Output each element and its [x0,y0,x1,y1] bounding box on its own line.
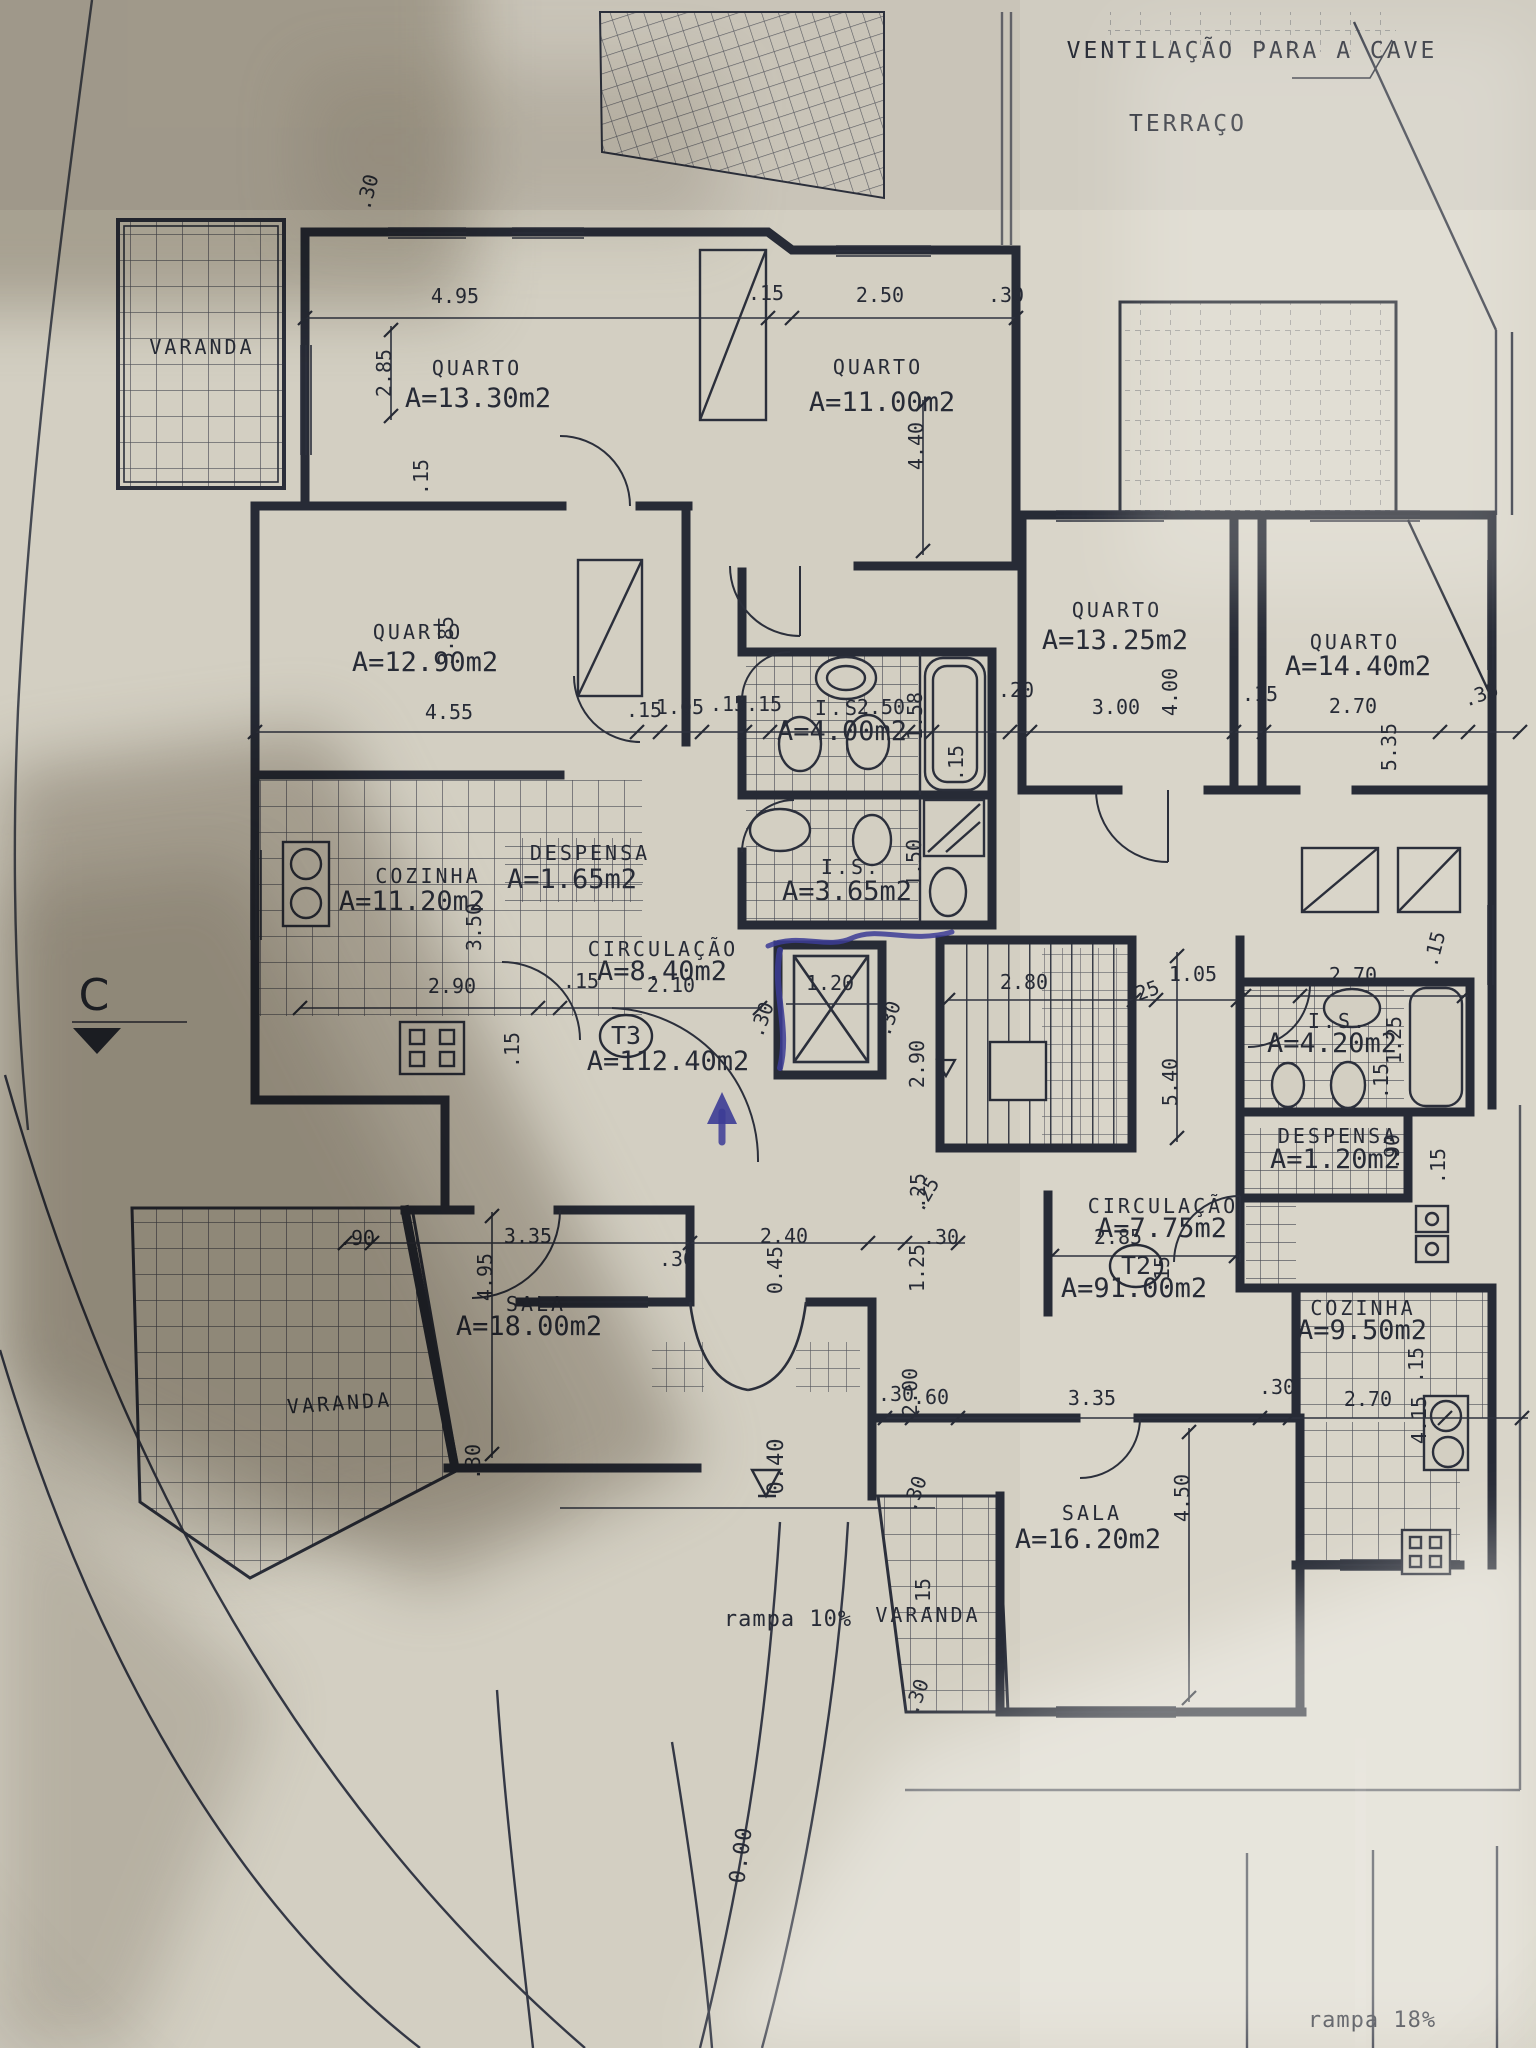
unit-area: A=112.40m2 [587,1046,750,1077]
dimension: 4.15 [1407,1396,1431,1444]
level-0-40: 0.40 [764,1438,789,1495]
floorplan-svg: VARANDAQUARTOA=13.30m2QUARTOA=11.00m2QUA… [0,0,1536,2048]
unit-area: A=91.00m2 [1061,1273,1207,1304]
dimension: .15 [944,745,968,781]
dimension: .15 [1369,1063,1393,1099]
dimension: 2.70 [1329,963,1377,987]
dimension: 2.80 [1000,970,1048,994]
room-area: A=4.20m2 [1267,1028,1397,1059]
dimension: 1.25 [905,1244,929,1292]
dimension: 4.00 [1158,668,1182,716]
bathtub-icon [1410,988,1462,1106]
dimension: 1.50 [902,839,926,887]
dimension: .90 [1380,1134,1404,1170]
room-label: QUARTO [432,356,522,380]
room-area: A=13.30m2 [405,383,551,414]
dimension: 2.10 [647,973,695,997]
room-area: A=11.00m2 [809,387,955,418]
room-area: A=1.65m2 [507,864,637,895]
dimension: .15 [1404,1347,1428,1383]
toilet-icon [1331,1062,1365,1108]
room-area: A=12.90m2 [352,647,498,678]
dimension: .15 [746,692,782,716]
dimension: 3.50 [462,903,486,951]
dimension: .30 [659,1247,695,1271]
dimension: .20 [998,678,1034,702]
room-area: A=4.00m2 [777,716,907,747]
dimension: 4.50 [1170,1474,1194,1522]
dimension: 2.50 [857,695,905,719]
room-label: SALA [1062,1501,1122,1525]
room-area: A=9.50m2 [1297,1315,1427,1346]
dimension: 2.50 [856,283,904,307]
dimension: .15 [563,969,599,993]
dimension: 3.00 [1092,695,1140,719]
floorplan-photo: VARANDAQUARTOA=13.30m2QUARTOA=11.00m2QUA… [0,0,1536,2048]
dimension: .30 [988,283,1024,307]
dimension: 2.85 [372,349,396,397]
dimension: .15 [409,459,433,495]
dimension: 1.58 [903,692,927,740]
dimension: 2.40 [760,1224,808,1248]
dimension: 2.00 [898,1368,922,1416]
dimension: .15 [710,692,746,716]
dimension: 3.85 [434,616,458,664]
room-area: A=13.25m2 [1042,625,1188,656]
room-area: A=14.40m2 [1285,651,1431,682]
room-area: A=16.20m2 [1015,1524,1161,1555]
dimension: 1.05 [656,695,704,719]
dimension: 1.05 [1169,962,1217,986]
washbasin-icon [816,657,876,699]
dimension: .15 [1242,682,1278,706]
dimension: 2.70 [1344,1387,1392,1411]
appliance-icon [1416,1236,1448,1262]
dimension: 0.45 [763,1246,787,1294]
bidet-icon [1272,1063,1304,1107]
dimension: 3.35 [1068,1386,1116,1410]
dimension: 4.55 [425,700,473,724]
dimension: 2.90 [905,1040,929,1088]
bidet-icon [930,868,966,916]
room-label: DESPENSA [530,841,650,865]
dimension: .15 [500,1032,524,1068]
washbasin-icon [750,809,810,851]
dimension: .15 [1426,1148,1450,1184]
dimension: 5.40 [1158,1058,1182,1106]
appliance-icon [1416,1206,1448,1232]
dimension: .15 [911,1578,935,1614]
note-rampa-10: rampa 10% [724,1607,852,1632]
room-label: VARANDA [149,335,254,359]
dimension: 2.70 [1329,694,1377,718]
dimension: 1.25 [1382,1016,1406,1064]
room-label: QUARTO [1072,598,1162,622]
dimension: .15 [748,281,784,305]
room-label: QUARTO [833,355,923,379]
dimension: .30 [1259,1375,1295,1399]
dimension: 1.20 [806,971,854,995]
room-area: A=3.65m2 [782,876,912,907]
dimension: 4.40 [904,422,928,470]
dimension: 5.35 [1377,723,1401,771]
